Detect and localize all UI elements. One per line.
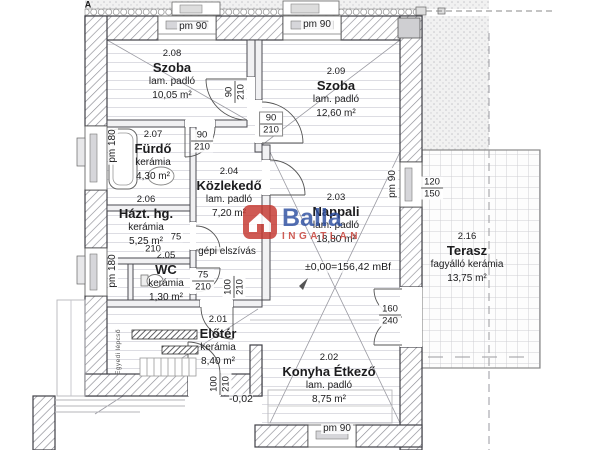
floorplan-page: A 2.08 Szoba lam. padló 10,05 m² 2.09 Sz… <box>0 0 600 450</box>
door-width: 90 <box>191 130 213 142</box>
room-label-furdo: 2.07 Fürdő kerámia 4,30 m² <box>135 128 172 184</box>
brand-text: Balla INGATLAN <box>282 207 361 242</box>
room-id: 2.01 <box>200 313 237 327</box>
room-area: 12,60 m² <box>313 107 359 121</box>
room-name: Konyha Étkező <box>282 365 375 379</box>
insulation-strip <box>85 9 422 16</box>
floor-level-label: ±0,00=156,42 mBf <box>305 262 391 273</box>
parapet-label: pm 90 <box>301 20 333 30</box>
parapet-label: pm 180 <box>108 127 118 164</box>
door-width: 75 <box>192 270 214 282</box>
room-id: 2.07 <box>135 128 172 142</box>
section-marker: A <box>85 1 92 10</box>
door-height: 210 <box>192 282 214 293</box>
room-id: 2.09 <box>313 65 359 79</box>
door-width: 160 <box>379 304 401 316</box>
room-area: 8,75 m² <box>282 393 375 407</box>
door-dim-label: 100 210 <box>223 276 246 298</box>
door-width-label: 75 <box>170 232 183 242</box>
brand-name: Balla <box>282 207 361 229</box>
window-sill: 150 <box>421 189 443 200</box>
room-name: Közlekedő <box>196 179 261 193</box>
room-id: 2.06 <box>119 193 173 207</box>
door-height: 210 <box>260 125 282 136</box>
room-floor: lam. padló <box>282 379 375 393</box>
room-floor: kerámia <box>135 156 172 170</box>
room-floor: lam. padló <box>149 75 195 89</box>
room-floor: kerámia <box>148 277 184 291</box>
room-label-szoba-209: 2.09 Szoba lam. padló 12,60 m² <box>313 65 359 121</box>
room-label-wc: 2.05 WC kerámia 1,30 m² <box>148 249 184 305</box>
room-area: 1,30 m² <box>148 291 184 305</box>
room-name: Szoba <box>149 61 195 75</box>
door-height: 210 <box>235 276 246 298</box>
mechanical-exhaust-note: gépi elszívás <box>198 247 256 257</box>
brand-logo-icon <box>243 205 277 244</box>
room-name: Szoba <box>313 79 359 93</box>
door-dim-label: 90 210 <box>191 130 213 153</box>
room-floor: fagyálló kerámia <box>431 258 504 272</box>
door-width: 90 <box>260 113 282 125</box>
room-name: Előtér <box>200 327 237 341</box>
room-id: 2.04 <box>196 165 261 179</box>
window-dim-label: 120 150 <box>421 177 443 200</box>
door-width: 100 <box>209 373 221 395</box>
parapet-label: pm 180 <box>108 252 118 289</box>
door-height: 240 <box>379 316 401 327</box>
room-area: 8,40 m² <box>200 355 237 369</box>
brand-subtitle: INGATLAN <box>282 231 361 242</box>
door-dim-label: 100 210 <box>209 373 232 395</box>
room-floor: lam. padló <box>313 93 359 107</box>
door-height: 210 <box>236 81 247 103</box>
door-height-label: 210 <box>144 244 162 254</box>
room-label-eloter: 2.01 Előtér kerámia 8,40 m² <box>200 313 237 369</box>
door-width: 90 <box>224 81 236 103</box>
room-floor: kerámia <box>119 221 173 235</box>
room-id: 2.03 <box>313 191 360 205</box>
door-height: 210 <box>191 142 213 153</box>
room-label-szoba-208: 2.08 Szoba lam. padló 10,05 m² <box>149 47 195 103</box>
room-name: Házt. hg. <box>119 207 173 221</box>
door-dim-label: 90 210 <box>224 81 247 103</box>
watermark: Balla INGATLAN <box>243 205 361 244</box>
room-floor: kerámia <box>200 341 237 355</box>
door-dim-label: 90 210 <box>259 112 283 137</box>
parapet-label: pm 90 <box>388 168 398 200</box>
room-name: WC <box>148 263 184 277</box>
room-label-konyha: 2.02 Konyha Étkező lam. padló 8,75 m² <box>282 351 375 407</box>
room-name: Terasz <box>431 244 504 258</box>
room-id: 2.08 <box>149 47 195 61</box>
room-area: 10,05 m² <box>149 89 195 103</box>
entry-level-label: -0,02 <box>229 394 253 405</box>
parapet-label: pm 90 <box>177 22 209 32</box>
room-name: Fürdő <box>135 142 172 156</box>
room-label-hazt-hg: 2.06 Házt. hg. kerámia 5,25 m² <box>119 193 173 249</box>
door-dim-label: 75 210 <box>192 270 214 293</box>
room-label-terasz: 2.16 Terasz fagyálló kerámia 13,75 m² <box>431 230 504 286</box>
door-width: 100 <box>223 276 235 298</box>
door-height: 210 <box>221 373 232 395</box>
custom-stair-note: Egyedi lépcső <box>116 329 123 375</box>
room-area: 4,30 m² <box>135 170 172 184</box>
room-area: 13,75 m² <box>431 272 504 286</box>
window-width: 120 <box>421 177 443 189</box>
room-id: 2.16 <box>431 230 504 244</box>
door-dim-label: 160 240 <box>379 304 401 327</box>
room-id: 2.02 <box>282 351 375 365</box>
parapet-label: pm 90 <box>321 424 353 434</box>
